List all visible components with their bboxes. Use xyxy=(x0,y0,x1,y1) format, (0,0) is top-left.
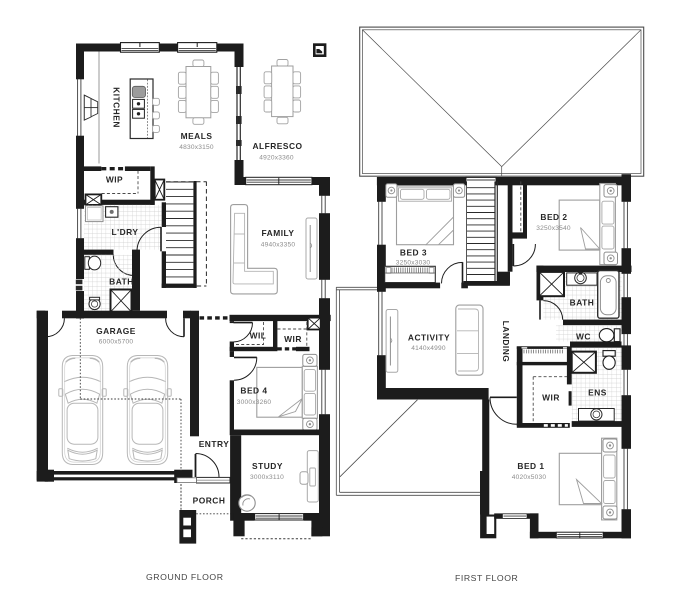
svg-text:BED 1: BED 1 xyxy=(517,461,544,471)
svg-text:ENTRY: ENTRY xyxy=(199,439,230,449)
svg-text:ACTIVITY: ACTIVITY xyxy=(408,333,450,343)
svg-text:STUDY: STUDY xyxy=(252,461,283,471)
svg-text:GROUND FLOOR: GROUND FLOOR xyxy=(146,572,224,582)
svg-text:4830x3150: 4830x3150 xyxy=(179,144,214,151)
svg-text:GARAGE: GARAGE xyxy=(96,326,136,336)
svg-text:WIL: WIL xyxy=(250,331,267,341)
svg-text:BATH: BATH xyxy=(109,277,134,287)
svg-text:BED 3: BED 3 xyxy=(400,248,427,258)
svg-text:MEALS: MEALS xyxy=(181,131,213,141)
svg-text:WIR: WIR xyxy=(284,334,302,344)
svg-text:3250x3540: 3250x3540 xyxy=(536,225,571,232)
svg-text:4920x3360: 4920x3360 xyxy=(259,155,294,162)
svg-text:ALFRESCO: ALFRESCO xyxy=(252,141,302,151)
svg-text:4140x4990: 4140x4990 xyxy=(411,345,446,352)
svg-text:LANDING: LANDING xyxy=(501,321,511,363)
svg-text:WIR: WIR xyxy=(542,393,560,403)
svg-text:FAMILY: FAMILY xyxy=(262,228,295,238)
svg-text:KITCHEN: KITCHEN xyxy=(112,87,122,128)
svg-text:3000x3110: 3000x3110 xyxy=(250,474,284,481)
svg-text:4940x3350: 4940x3350 xyxy=(261,242,296,249)
svg-text:4020x5030: 4020x5030 xyxy=(512,474,547,481)
svg-text:BATH: BATH xyxy=(570,298,595,308)
svg-text:WC: WC xyxy=(576,332,591,342)
svg-text:FIRST FLOOR: FIRST FLOOR xyxy=(455,573,518,583)
svg-text:ENS: ENS xyxy=(588,388,607,398)
svg-text:6000x5700: 6000x5700 xyxy=(99,339,134,346)
svg-text:WIP: WIP xyxy=(106,175,123,185)
svg-text:PORCH: PORCH xyxy=(193,496,226,506)
svg-text:BED 2: BED 2 xyxy=(540,212,567,222)
svg-text:3250x3030: 3250x3030 xyxy=(396,260,431,267)
svg-text:L'DRY: L'DRY xyxy=(112,227,139,237)
svg-text:BED 4: BED 4 xyxy=(240,386,267,396)
svg-text:3000x3260: 3000x3260 xyxy=(237,399,272,406)
